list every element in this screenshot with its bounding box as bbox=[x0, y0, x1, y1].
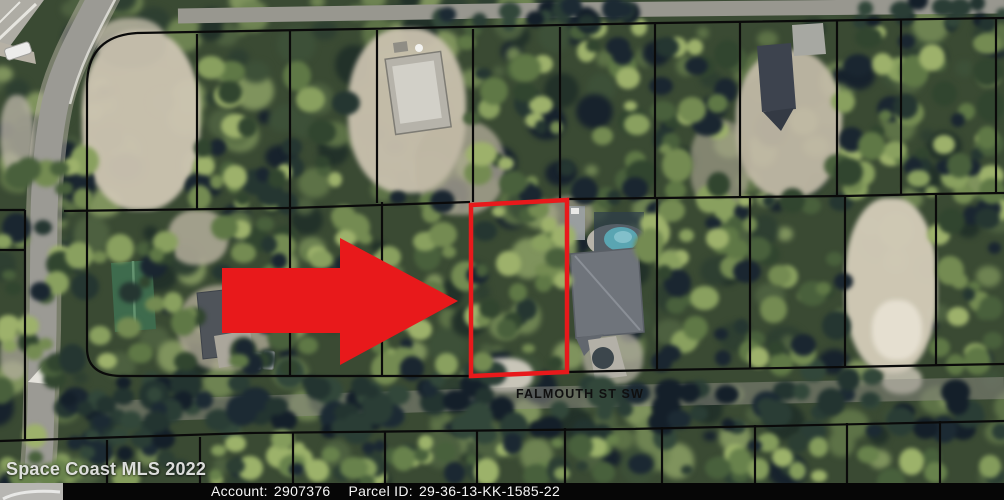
street-name-label: FALMOUTH ST SW bbox=[516, 387, 644, 401]
road-curb bbox=[3, 491, 60, 499]
highlighted-parcel-outline bbox=[471, 200, 567, 376]
account-label: Account: bbox=[211, 483, 268, 500]
mls-watermark: Space Coast MLS 2022 bbox=[6, 459, 206, 480]
account-value: 2907376 bbox=[274, 483, 331, 500]
parcel-boundary-lines bbox=[0, 18, 1004, 483]
road-fragment-bottom-left bbox=[0, 483, 63, 500]
red-arrow bbox=[222, 238, 458, 365]
parcel-id-label: Parcel ID: bbox=[349, 483, 413, 500]
mls-aerial-map: FALMOUTH ST SW Space Coast MLS 2022 Acco… bbox=[0, 0, 1004, 500]
parcel-id-value: 29-36-13-KK-1585-22 bbox=[419, 483, 560, 500]
footer-bar: Account: 2907376 Parcel ID: 29-36-13-KK-… bbox=[63, 483, 1004, 500]
parcel-overlay bbox=[0, 0, 1004, 500]
